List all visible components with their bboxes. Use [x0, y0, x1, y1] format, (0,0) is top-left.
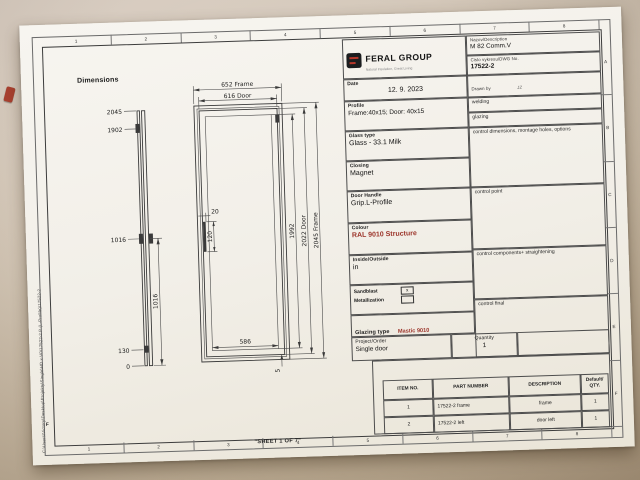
bottom-gap-dim: 5 [275, 368, 282, 372]
parts-header-qty: Default/ QTY. [580, 373, 609, 394]
parts-header-item-no: ITEM NO. [383, 379, 434, 401]
handle-offset-dim: 20 [211, 208, 219, 215]
feral-group-logo-icon [346, 53, 361, 68]
parts-row-2-item: 2 [384, 416, 435, 435]
frame-height-dim: 2045 Frame [312, 212, 320, 248]
door-height-dim: 2022 Door [300, 214, 308, 246]
glazing-type-label: Glazing type [355, 329, 390, 336]
project-order-value: Single door [355, 343, 447, 353]
company-name: FERAL GROUP [365, 52, 432, 64]
parts-header-part-number: PART NUMBER [433, 376, 510, 398]
door-handle-cell: Door Handle Grip.L-Profile [347, 187, 472, 223]
glass-type-cell: Glass type Glass - 33.1 Milk [345, 127, 470, 161]
desk-red-mark [3, 86, 15, 103]
parts-row-1-item: 1 [383, 399, 434, 418]
door-drawing: 2045 1902 1016 130 0 1016 20 [56, 55, 358, 436]
zone-letter: A [600, 29, 612, 96]
process-control-dimensions-cell: control dimensions, montage holes, optio… [469, 123, 605, 187]
sandblast-checkbox: x [401, 286, 414, 294]
project-order-cell: Project/Order Single door [351, 334, 452, 361]
process-control-point-cell: control point [471, 183, 607, 249]
side-view: 2045 1902 1016 130 0 1016 [107, 108, 166, 371]
handle-length-dim: 120 [207, 231, 214, 243]
process-control-components-cell: control components+ straightening [472, 245, 608, 299]
front-view: 20 120 652 Frame 616 Door [193, 79, 327, 375]
inside-outside-cell: Inside/Outside in [349, 251, 474, 285]
door-width-dim: 616 Door [224, 92, 253, 100]
span-dim-1016: 1016 [152, 293, 159, 309]
ordinate-1902: 1902 [107, 127, 123, 134]
colour-cell: Colour RAL 9010 Structure [348, 219, 473, 255]
glass-width-dim: 586 [239, 338, 251, 345]
sandblast-label: Sandblast [354, 288, 398, 295]
zone-letter: D [606, 228, 618, 295]
frame-width-dim: 652 Frame [221, 81, 254, 89]
zone-letter-bottom-left: F [46, 423, 49, 428]
drawing-sheet: 1 2 3 4 5 6 7 8 1 2 3 4 5 6 7 8 A B C D … [19, 7, 635, 466]
parts-row-2-part-number: 17522-2 left [434, 413, 510, 432]
profile-cell: Profile Frame:40x15; Door: 40x15 [344, 98, 469, 132]
parts-row-2-qty: 1 [582, 410, 611, 428]
process-control-final-cell: control final [474, 295, 610, 357]
metallization-label: Metallization [354, 297, 398, 304]
ordinate-130: 130 [118, 348, 130, 355]
surface-treatment-cell: Sandblast x Metallization [350, 281, 475, 315]
glass-height-dim: 1992 [289, 223, 296, 239]
drawn-by-value: JZ [517, 85, 522, 90]
parts-header-description: DESCRIPTION [508, 374, 581, 396]
ordinate-2045: 2045 [107, 109, 123, 116]
closing-cell: Closing Magnet [346, 157, 471, 191]
drawn-by-label: Drawn by [471, 86, 491, 92]
metallization-checkbox [401, 295, 414, 303]
company-logo: FERAL GROUP Natural Insulation, Great Li… [342, 36, 467, 80]
zone-letter: B [602, 95, 614, 162]
ordinate-1016: 1016 [111, 237, 127, 244]
parts-row-2-description: door left [510, 411, 582, 430]
title-block: FERAL GROUP Natural Insulation, Great Li… [342, 31, 612, 435]
company-tagline: Natural Insulation, Great Living [366, 66, 433, 72]
zone-letter: E [608, 294, 620, 361]
parts-table: ITEM NO. PART NUMBER DESCRIPTION Default… [383, 373, 611, 434]
glazing-type-value: Mastic 9010 [398, 328, 430, 335]
ordinate-0: 0 [126, 364, 130, 371]
parts-row-1-qty: 1 [581, 393, 610, 411]
